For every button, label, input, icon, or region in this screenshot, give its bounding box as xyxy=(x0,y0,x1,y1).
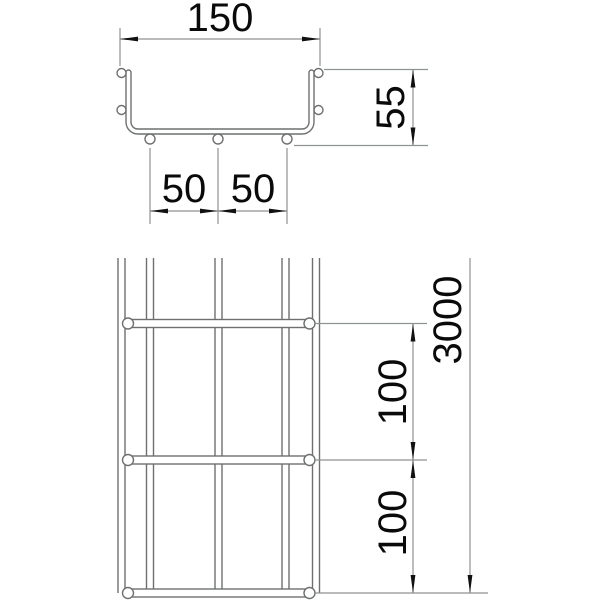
cross-wire-2 xyxy=(123,455,316,466)
bottom-wire-right xyxy=(282,134,292,144)
spacing-label-right: 50 xyxy=(231,167,276,211)
rung-spacing-dimension-lower: 100 xyxy=(315,460,488,593)
longitudinal-wire-4 xyxy=(282,258,289,593)
side-wire-mid-right xyxy=(314,106,323,115)
bottom-wire-center xyxy=(213,134,223,144)
rung-spacing-dimension-upper: 100 xyxy=(315,324,427,461)
cross-wire-body xyxy=(126,589,311,597)
arrowhead-left xyxy=(120,37,138,42)
cross-wire-end-left xyxy=(123,318,134,329)
arrowhead-right xyxy=(302,37,320,42)
arrowhead-up xyxy=(411,324,416,342)
longitudinal-wire-5 xyxy=(313,258,320,593)
spacing-label-left: 50 xyxy=(162,167,207,211)
cross-wire-1 xyxy=(123,318,316,329)
arrowhead-down xyxy=(468,575,473,593)
arrowhead-up xyxy=(411,70,416,88)
drawing-canvas: 150 55 50 50 xyxy=(0,0,600,600)
width-dimension-label: 150 xyxy=(187,0,254,40)
rung-spacing-label-lower: 100 xyxy=(371,490,415,557)
bottom-wire-left xyxy=(145,134,155,144)
side-wire-mid-left xyxy=(117,106,126,115)
height-dimension-label: 55 xyxy=(369,85,413,130)
rung-spacing-label-upper: 100 xyxy=(371,359,415,426)
cross-wire-end-right xyxy=(304,588,315,599)
arrowhead-down xyxy=(411,575,416,593)
length-dimension: 3000 xyxy=(426,258,472,593)
length-dimension-label: 3000 xyxy=(426,276,470,365)
technical-drawing: 150 55 50 50 xyxy=(0,0,600,600)
width-dimension: 150 xyxy=(120,0,320,66)
longitudinal-wire-3 xyxy=(215,258,222,593)
cross-wire-end-left xyxy=(123,588,134,599)
cross-wire-end-right xyxy=(304,318,315,329)
cross-section-view xyxy=(117,69,323,145)
longitudinal-wire-1 xyxy=(118,258,125,593)
cross-wire-3 xyxy=(123,588,316,599)
bottom-wire-spacing-dimension: 50 50 xyxy=(150,148,287,224)
side-wire-top-left xyxy=(117,69,126,78)
longitudinal-wire-2 xyxy=(147,258,154,593)
cross-wire-body xyxy=(126,320,311,328)
cross-wire-body xyxy=(126,456,311,464)
arrowhead-up xyxy=(411,460,416,478)
arrowhead-down xyxy=(411,442,416,460)
plan-view xyxy=(118,258,320,599)
cross-wire-end-right xyxy=(304,455,315,466)
side-wire-top-right xyxy=(314,69,323,78)
cross-wire-end-left xyxy=(123,455,134,466)
tray-profile-outline xyxy=(126,70,314,134)
